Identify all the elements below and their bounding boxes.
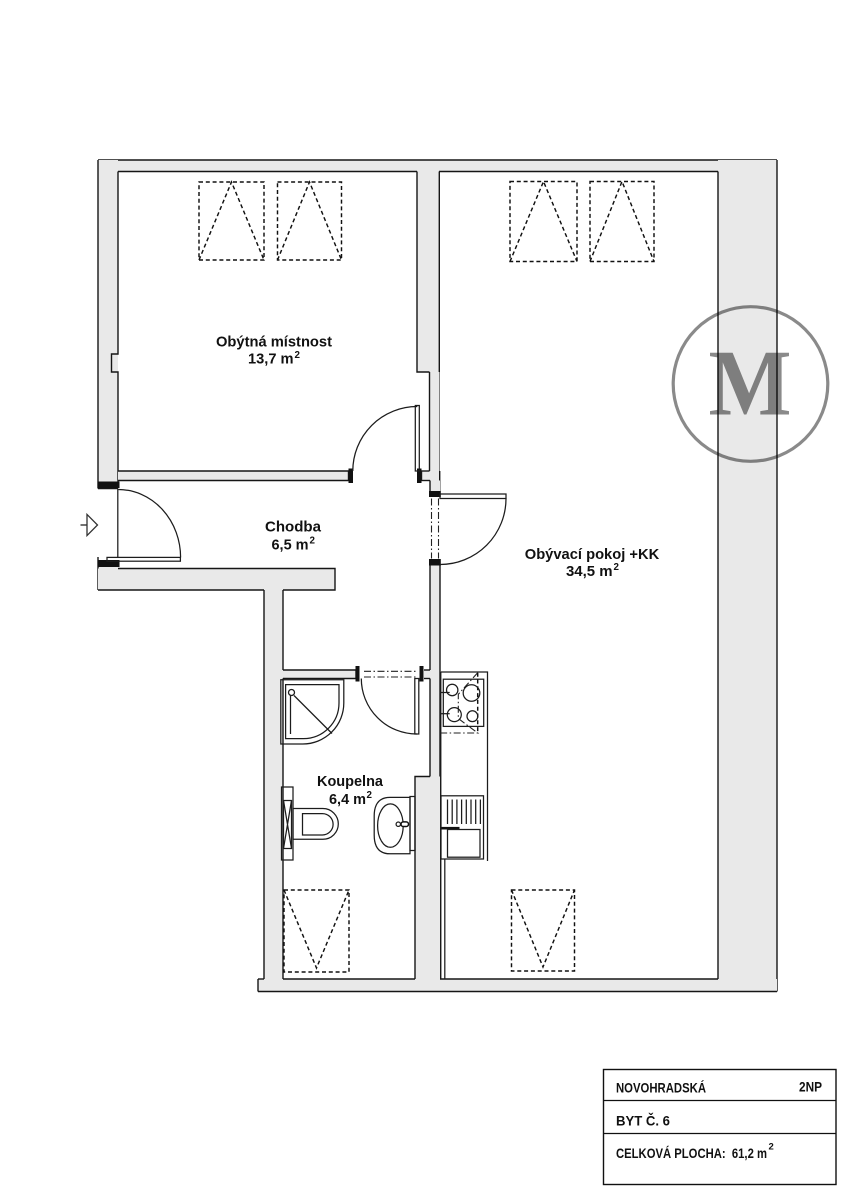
svg-text:BYT Č. 6: BYT Č. 6 bbox=[616, 1112, 670, 1129]
svg-text:Obýtná místnost: Obýtná místnost bbox=[216, 335, 332, 351]
svg-text:Chodba: Chodba bbox=[265, 520, 322, 536]
svg-text:CELKOVÁ PLOCHA: 61,2 m: CELKOVÁ PLOCHA: 61,2 m bbox=[616, 1145, 767, 1161]
svg-text:2: 2 bbox=[295, 350, 301, 361]
svg-text:6,4 m: 6,4 m bbox=[329, 792, 366, 808]
svg-text:34,5 m: 34,5 m bbox=[566, 564, 613, 580]
svg-text:2: 2 bbox=[310, 536, 316, 547]
svg-text:13,7 m: 13,7 m bbox=[248, 352, 294, 368]
svg-text:2: 2 bbox=[614, 562, 620, 573]
svg-text:M: M bbox=[709, 332, 792, 436]
svg-text:Obývací pokoj +KK: Obývací pokoj +KK bbox=[525, 547, 660, 563]
svg-text:2NP: 2NP bbox=[799, 1079, 822, 1095]
svg-text:2: 2 bbox=[769, 1142, 774, 1153]
svg-text:2: 2 bbox=[367, 790, 373, 801]
svg-text:Koupelna: Koupelna bbox=[317, 774, 384, 790]
svg-text:6,5 m: 6,5 m bbox=[272, 538, 309, 554]
svg-text:NOVOHRADSKÁ: NOVOHRADSKÁ bbox=[616, 1080, 706, 1096]
